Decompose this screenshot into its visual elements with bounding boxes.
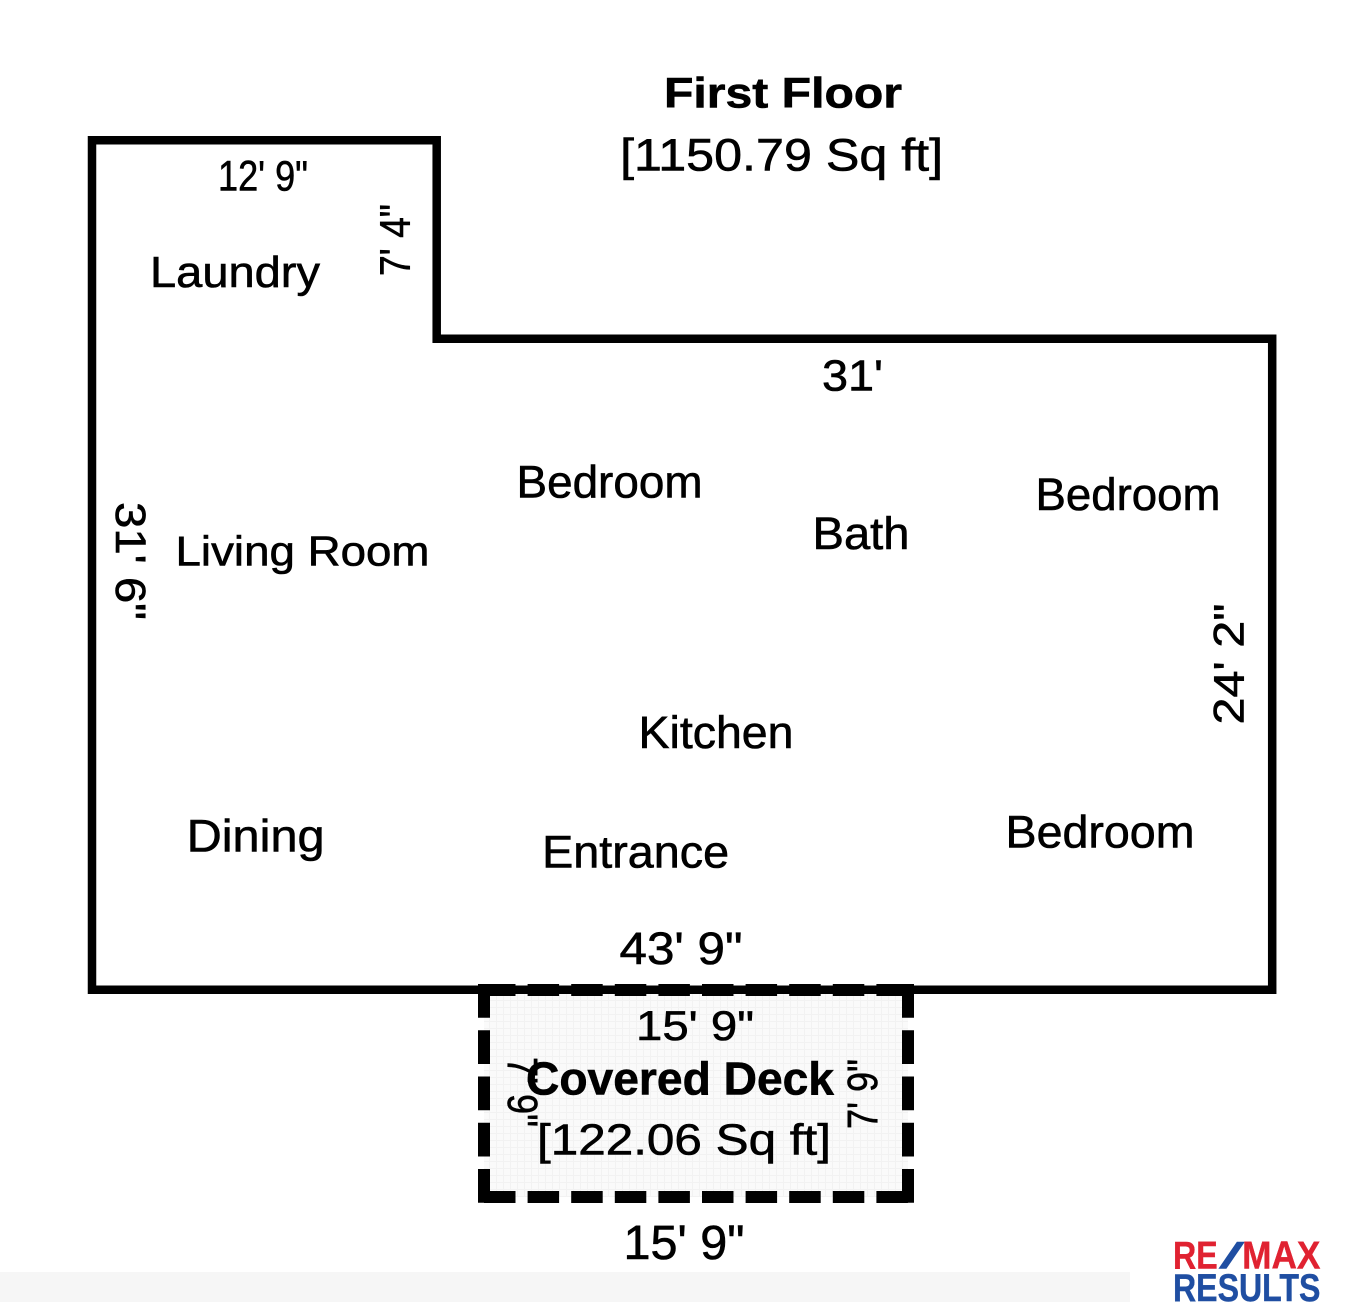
- svg-text:Dining: Dining: [187, 810, 325, 861]
- svg-text:[122.06 Sq ft]: [122.06 Sq ft]: [537, 1116, 831, 1165]
- svg-text:31' 6": 31' 6": [106, 502, 154, 620]
- svg-text:12' 9": 12' 9": [218, 153, 308, 201]
- svg-text:Bath: Bath: [813, 508, 910, 559]
- svg-text:Kitchen: Kitchen: [639, 707, 794, 758]
- svg-text:Bedroom: Bedroom: [1036, 469, 1221, 520]
- svg-text:15' 9": 15' 9": [624, 1217, 745, 1270]
- svg-text:24' 2": 24' 2": [1206, 604, 1254, 725]
- svg-text:[1150.79 Sq ft]: [1150.79 Sq ft]: [620, 130, 943, 181]
- svg-text:RESULTS: RESULTS: [1173, 1267, 1320, 1302]
- svg-text:Entrance: Entrance: [542, 826, 729, 877]
- svg-text:7' 9": 7' 9": [839, 1059, 887, 1129]
- svg-text:Living Room: Living Room: [176, 528, 430, 575]
- svg-text:First Floor: First Floor: [664, 70, 902, 118]
- svg-text:43' 9": 43' 9": [620, 923, 743, 974]
- svg-text:Covered Deck: Covered Deck: [526, 1053, 834, 1105]
- svg-text:Bedroom: Bedroom: [1006, 806, 1195, 857]
- svg-text:Laundry: Laundry: [150, 248, 320, 297]
- svg-text:15' 9": 15' 9": [636, 1002, 754, 1049]
- svg-text:7' 4": 7' 4": [372, 204, 420, 276]
- svg-text:Bedroom: Bedroom: [517, 457, 703, 508]
- svg-text:31': 31': [822, 352, 883, 401]
